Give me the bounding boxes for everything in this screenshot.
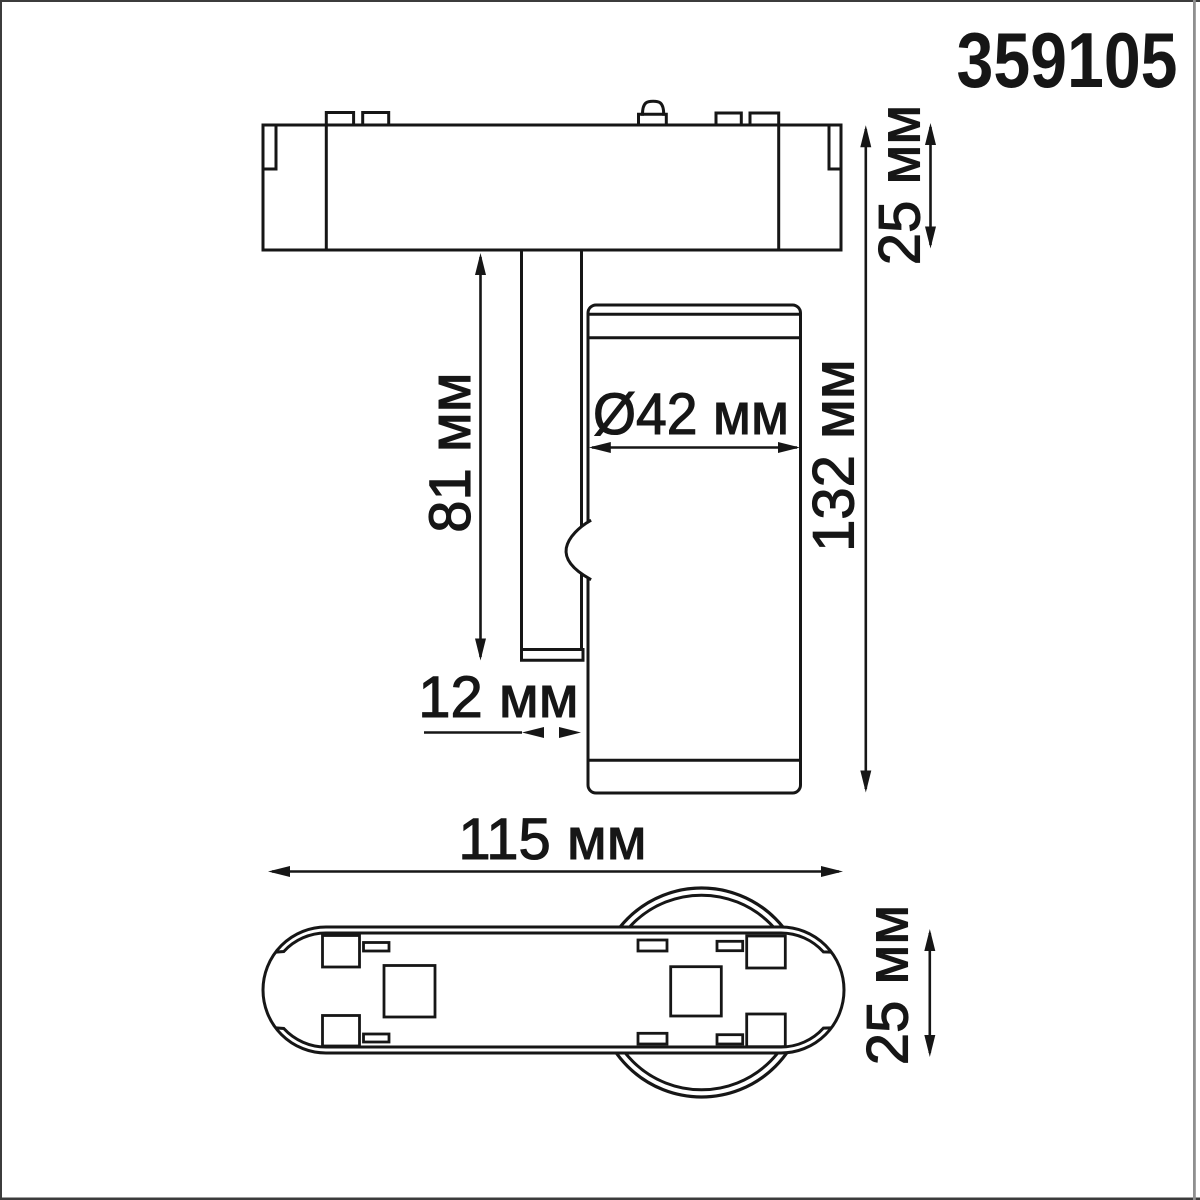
svg-text:12 мм: 12 мм [418,665,578,730]
svg-text:25 мм: 25 мм [855,905,920,1065]
svg-text:115 мм: 115 мм [458,807,646,872]
svg-text:359105: 359105 [957,18,1178,104]
svg-text:25 мм: 25 мм [867,105,932,265]
svg-text:132 мм: 132 мм [801,359,866,552]
svg-text:81 мм: 81 мм [418,372,483,532]
svg-text:Ø42 мм: Ø42 мм [593,382,789,447]
